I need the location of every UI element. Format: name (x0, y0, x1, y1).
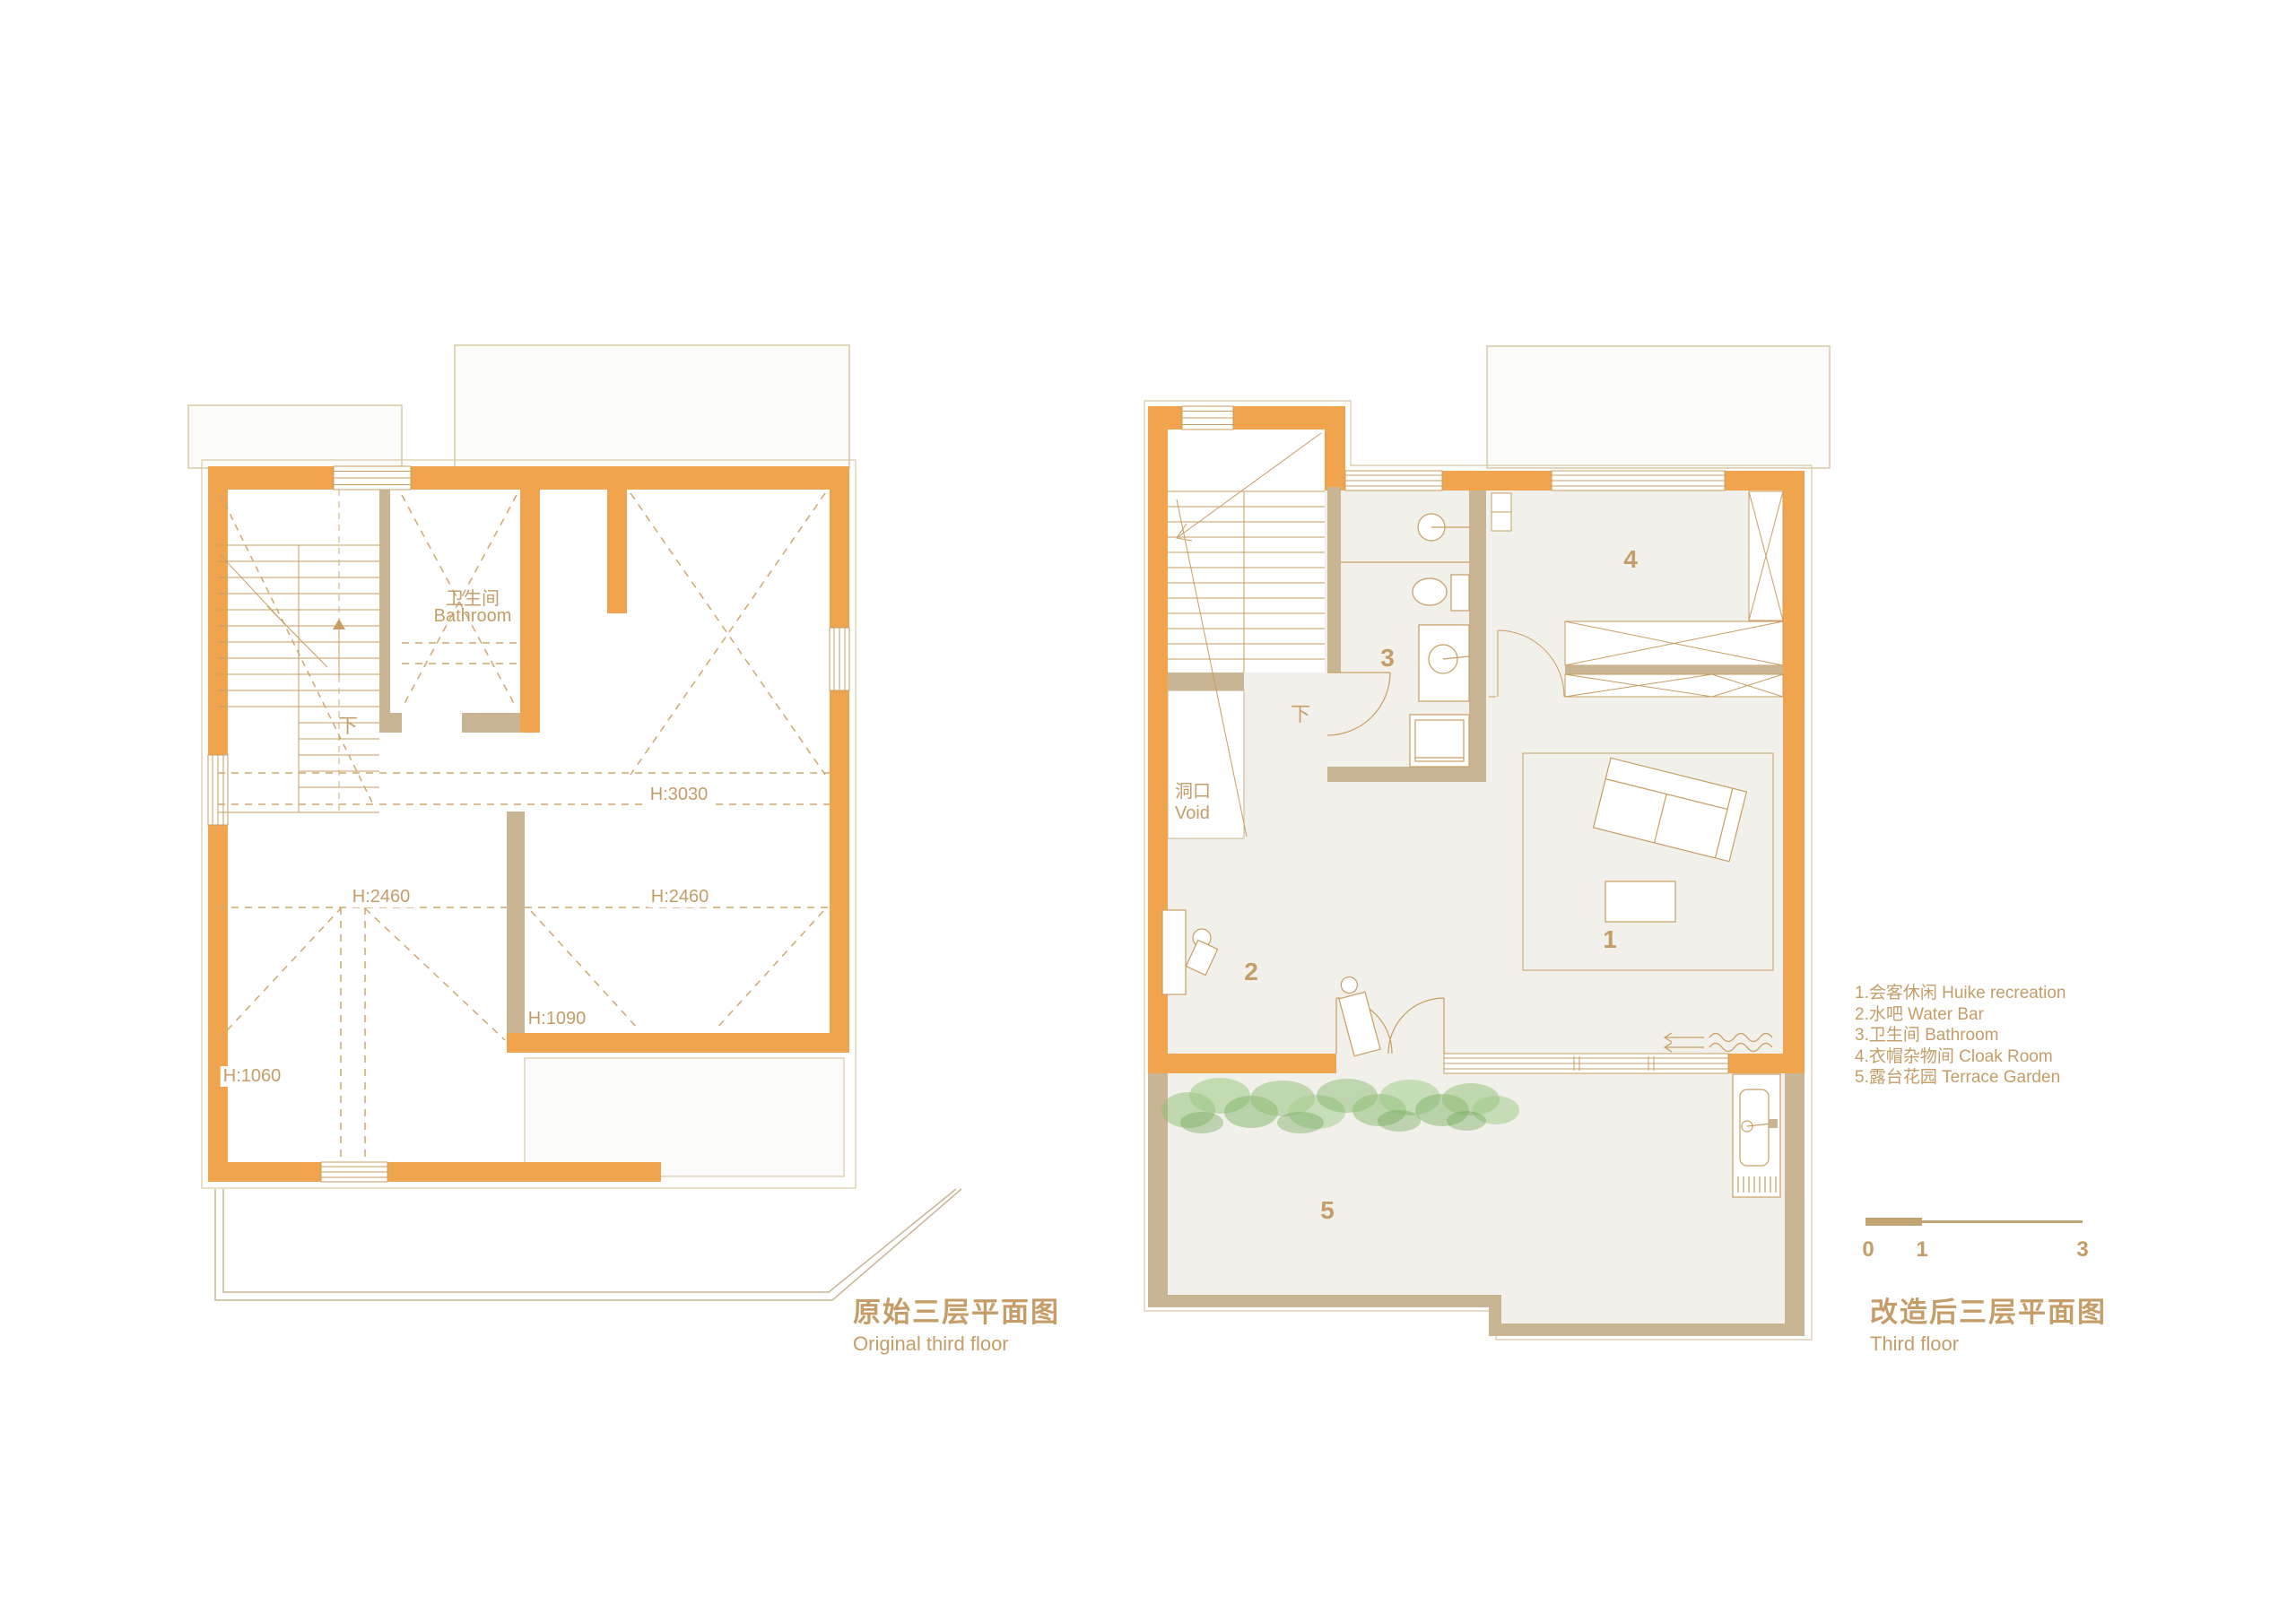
right-down-label: 下 (1291, 699, 1310, 727)
scale-bar-thick-segment (1865, 1218, 1922, 1226)
outdoor-sink (1733, 1074, 1780, 1197)
height-2460-right-label: H:2460 (648, 887, 712, 907)
scale-bar-thin-segment (1922, 1220, 2083, 1223)
scale-tick-0: 0 (1862, 1237, 1874, 1263)
height-2460-left-label: H:2460 (350, 887, 413, 907)
coffee-table (1605, 881, 1675, 922)
left-roof-outline-large (455, 345, 849, 468)
height-1090-label: H:1090 (526, 1009, 589, 1029)
room-legend: 1.会客休闲 Huike recreation 2.水吧 Water Bar 3… (1855, 983, 2066, 1089)
right-plan-title-cn: 改造后三层平面图 (1870, 1289, 2107, 1330)
right-plan-title-en: Third floor (1870, 1332, 1959, 1356)
void-label-cn: 洞口 (1175, 777, 1211, 803)
right-plan (1144, 346, 1830, 1340)
left-bathroom-label-en: Bathroom (434, 606, 512, 627)
room-4-number: 4 (1623, 545, 1638, 574)
legend-item-4: 4.衣帽杂物间 Cloak Room (1855, 1046, 2066, 1068)
room-5-number: 5 (1320, 1196, 1335, 1225)
height-3030-label: H:3030 (648, 785, 711, 805)
legend-item-3: 3.卫生间 Bathroom (1855, 1025, 2066, 1046)
room-1-number: 1 (1603, 925, 1617, 954)
floor-plans-drawing (0, 0, 2296, 1623)
right-roof-outline (1487, 346, 1830, 468)
void-label-en: Void (1175, 803, 1210, 824)
left-lower-roof-inset (525, 1058, 844, 1176)
scale-tick-3: 3 (2076, 1237, 2088, 1263)
door-threshold (1336, 1054, 1444, 1073)
scale-tick-1: 1 (1916, 1237, 1927, 1263)
left-staircase (218, 490, 379, 812)
left-tan-walls (379, 490, 525, 1033)
left-terrace-outline (215, 1189, 961, 1300)
left-down-label: 下 (338, 710, 358, 739)
stairwell-floor (1168, 430, 1325, 673)
legend-item-1: 1.会客休闲 Huike recreation (1855, 983, 2066, 1004)
left-plan-title-en: Original third floor (853, 1332, 1009, 1356)
room-3-number: 3 (1380, 644, 1395, 673)
left-plan-title-cn: 原始三层平面图 (853, 1289, 1060, 1330)
legend-item-2: 2.水吧 Water Bar (1855, 1004, 2066, 1026)
left-roof-outline-small (188, 405, 402, 468)
floor-plan-sheet: { "left_plan": { "title_cn": "原始三层平面图", … (0, 0, 2296, 1623)
left-plan (188, 345, 961, 1300)
height-1060-label: H:1060 (221, 1066, 284, 1087)
room-2-number: 2 (1244, 958, 1258, 986)
legend-item-5: 5.露台花园 Terrace Garden (1855, 1067, 2066, 1089)
